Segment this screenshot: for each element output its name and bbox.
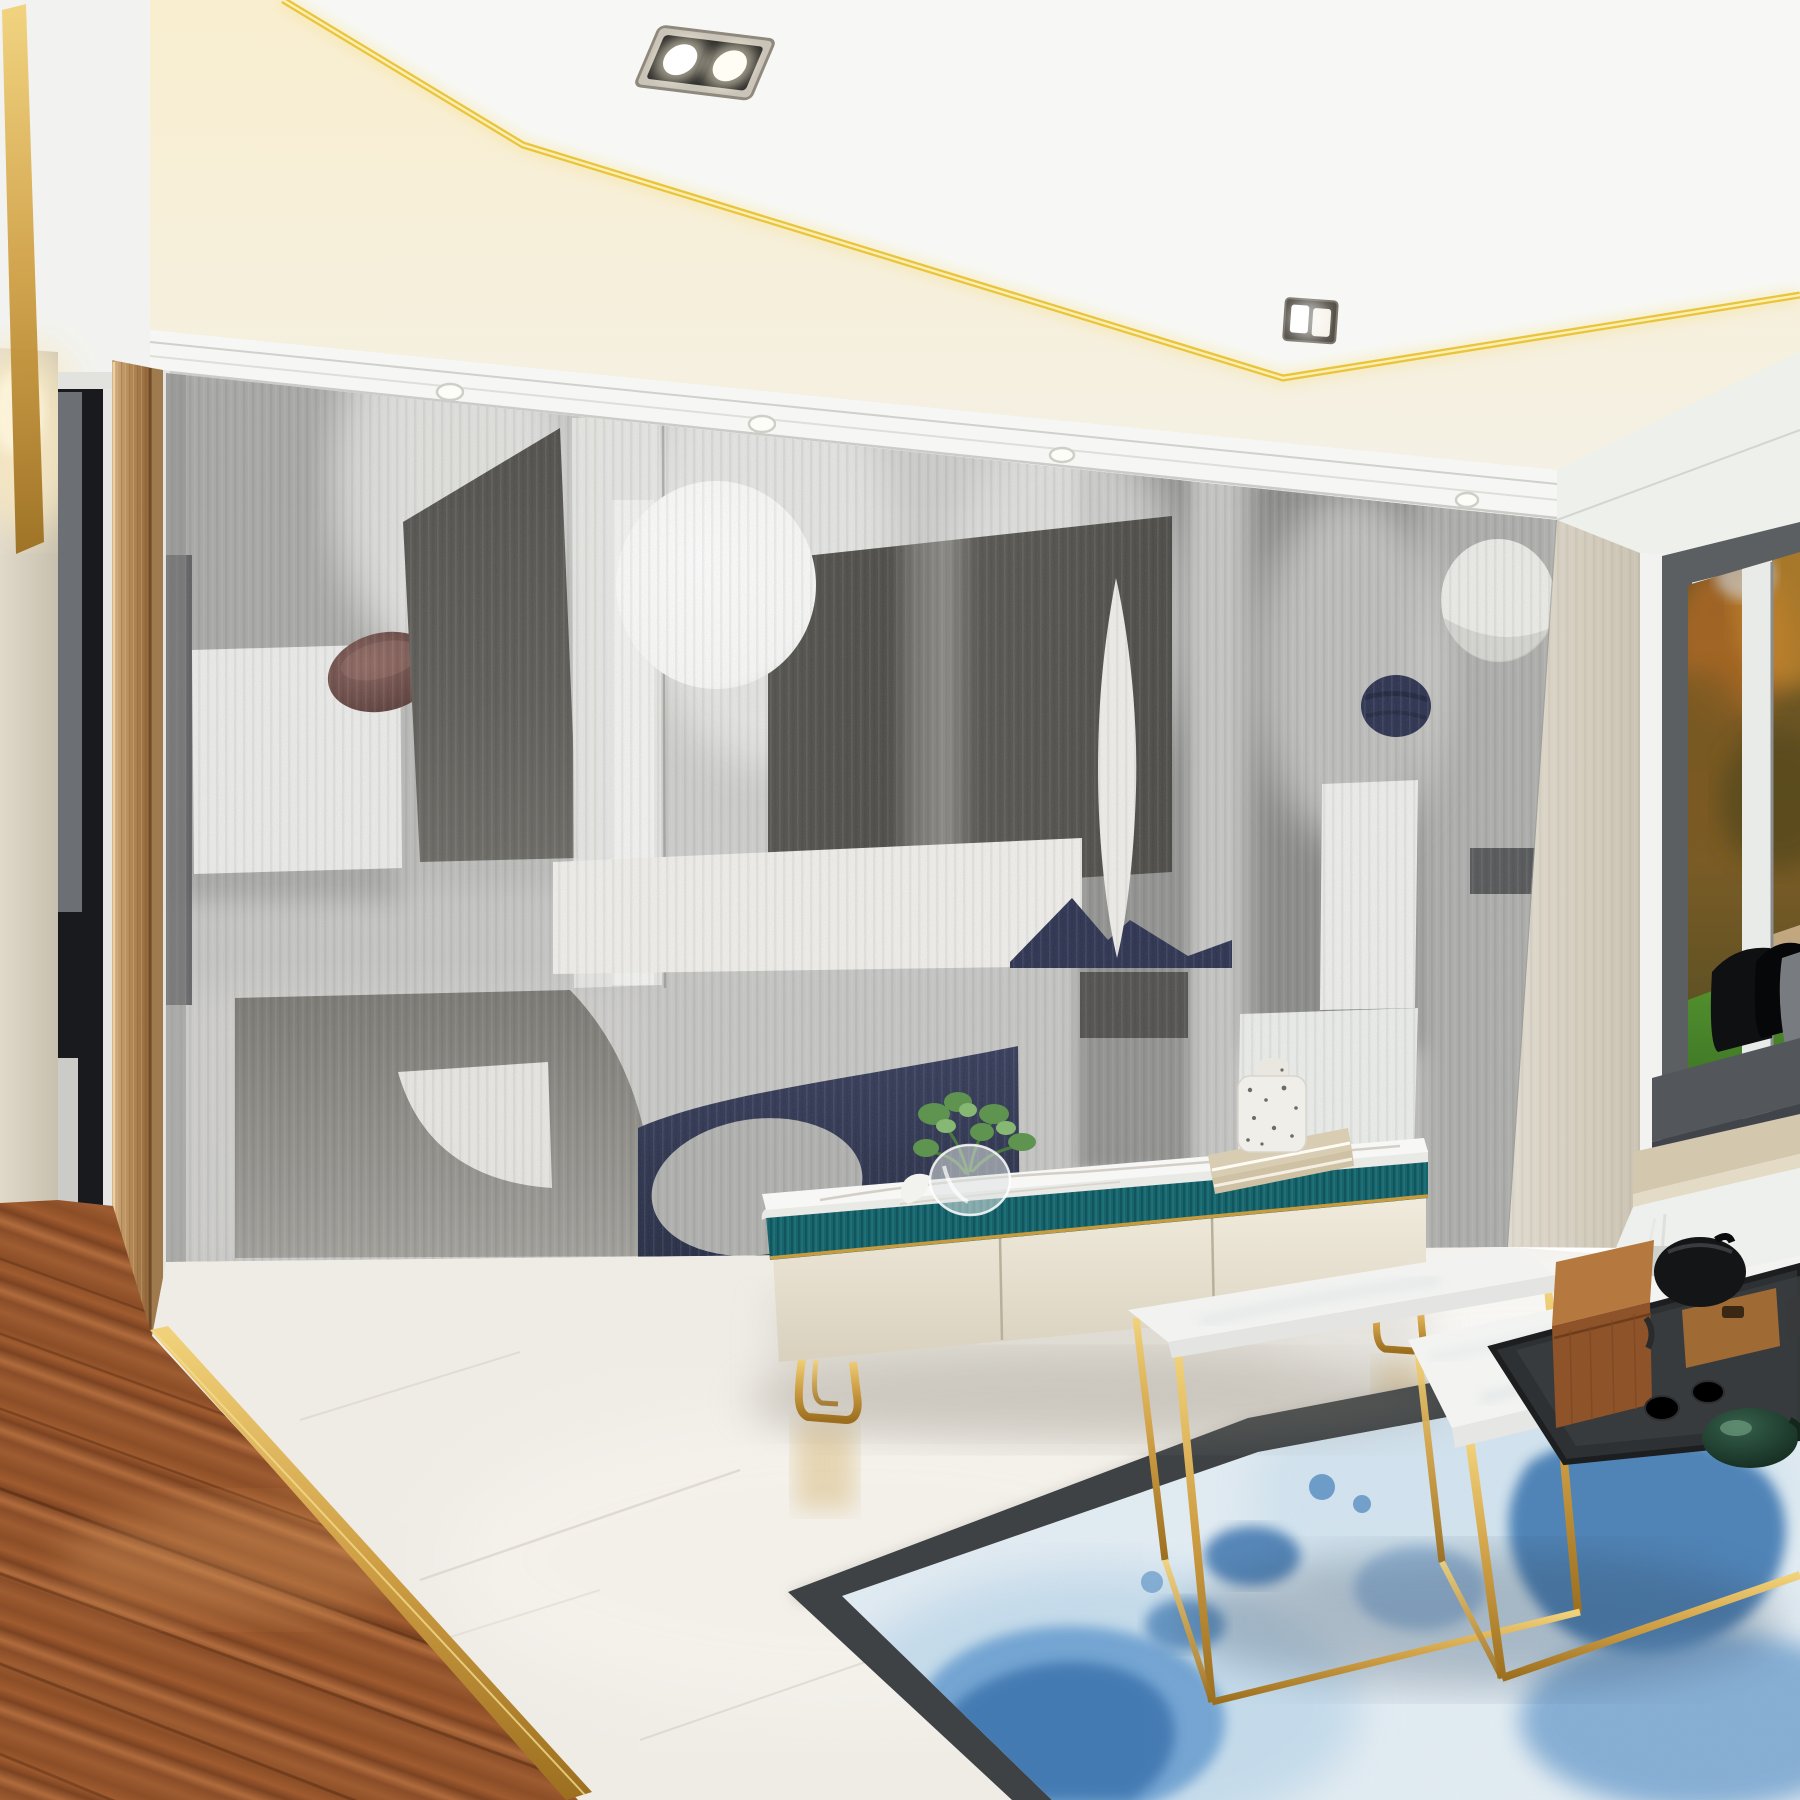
double-spotlight-fixture [635,26,775,100]
door-leaf [58,1058,78,1208]
vase-neck [1258,1058,1288,1078]
downlight-icon [1050,448,1074,462]
console-shadow [740,1354,1460,1446]
door-lintel [58,372,114,389]
table-shadow [1180,1550,1780,1690]
oak-strip-2 [152,368,163,1356]
downlight-icon [1456,493,1478,507]
caddy-slot [1722,1306,1744,1318]
green-pot-highlight [1720,1420,1752,1436]
doorway-curtain [58,392,82,912]
living-room-render [0,0,1800,1800]
downlight-icon [749,416,775,432]
dark-utensil [1786,1296,1800,1340]
right-wall-window [1508,510,1800,1268]
black-teapot [1654,1236,1746,1307]
tea-cup [1692,1381,1724,1403]
render-canvas [0,0,1800,1800]
small-spotlight-fixture [1283,298,1338,344]
mural-left-edge-shade [166,373,186,1262]
wooden-tea-box [1552,1240,1654,1428]
tea-cup [1645,1396,1679,1420]
oak-pillar-grain [112,360,152,1352]
gold-leg-reflection [795,1420,855,1510]
downlight-icon [437,384,463,400]
